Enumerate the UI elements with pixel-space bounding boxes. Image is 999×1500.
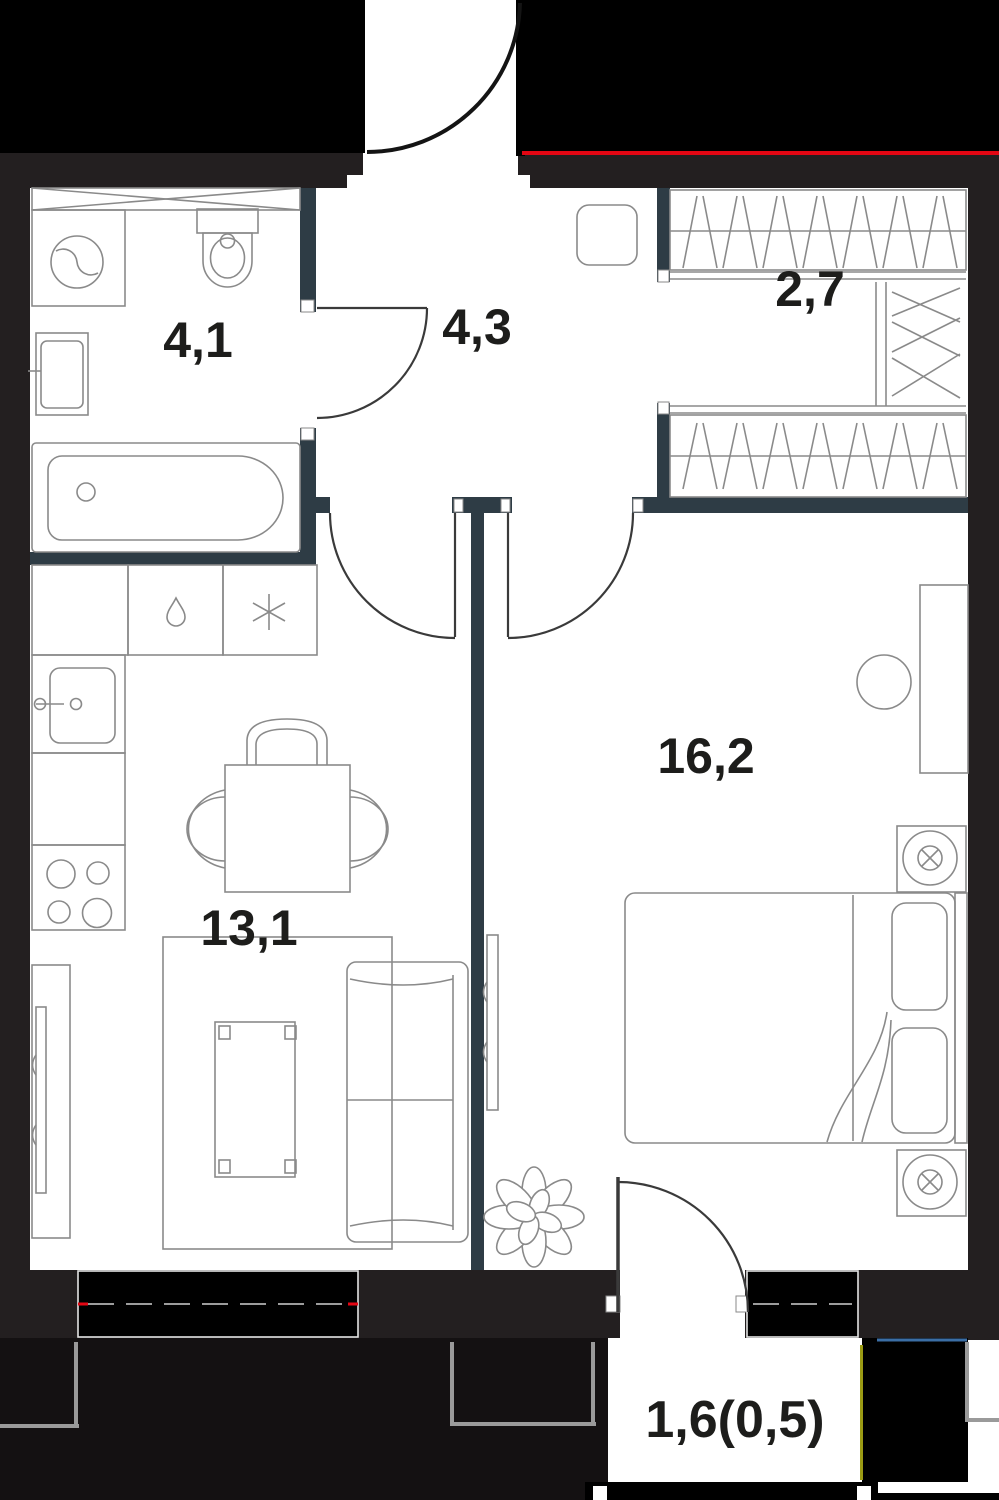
bedroom-window xyxy=(747,1271,858,1337)
kitchen-cabinet xyxy=(32,753,125,845)
living-room-window xyxy=(78,1271,358,1337)
room-label-wardrobe: 2,7 xyxy=(775,260,845,318)
room-label-kitchen-living: 13,1 xyxy=(200,899,297,957)
stove xyxy=(32,845,125,930)
dining-table xyxy=(187,719,388,892)
wardrobe-rack-bottom xyxy=(670,406,966,497)
sofa xyxy=(347,962,468,1242)
kitchen-counter xyxy=(32,565,317,655)
facade-lines xyxy=(0,1342,999,1428)
ventilation-shaft xyxy=(32,188,300,210)
floor-plan: 4,1 4,3 2,7 16,2 13,1 1,6(0,5) xyxy=(0,0,999,1500)
room-label-balcony: 1,6(0,5) xyxy=(645,1390,824,1450)
room-label-bedroom: 16,2 xyxy=(657,727,754,785)
bedroom-door xyxy=(508,513,633,638)
washing-machine xyxy=(28,333,88,415)
kitchen-sink xyxy=(32,655,125,753)
room-label-hallway: 4,3 xyxy=(442,298,512,356)
plan-linework xyxy=(0,0,999,1500)
toilet xyxy=(197,209,258,287)
living-room-door xyxy=(330,513,455,638)
wardrobe-rack-side xyxy=(876,282,960,406)
room-label-bathroom: 4,1 xyxy=(163,311,233,369)
tv-console xyxy=(32,965,70,1238)
electrical-panel xyxy=(577,205,637,265)
bathroom-door xyxy=(317,308,427,418)
balcony-door xyxy=(618,1177,748,1312)
nightstand-top xyxy=(897,826,966,892)
door-openings xyxy=(300,270,750,1312)
bedroom-tv xyxy=(484,935,499,1110)
bed xyxy=(625,893,967,1143)
washbasin xyxy=(32,210,125,306)
bathtub xyxy=(32,443,300,552)
nightstand-bottom xyxy=(897,1150,966,1216)
desk xyxy=(857,585,968,773)
fridge-snowflake-icon xyxy=(253,594,285,630)
coffee-table xyxy=(215,1022,296,1177)
dishwasher-drop-icon xyxy=(167,598,185,626)
entrance-door-swing xyxy=(367,3,520,152)
plant xyxy=(484,1167,584,1267)
